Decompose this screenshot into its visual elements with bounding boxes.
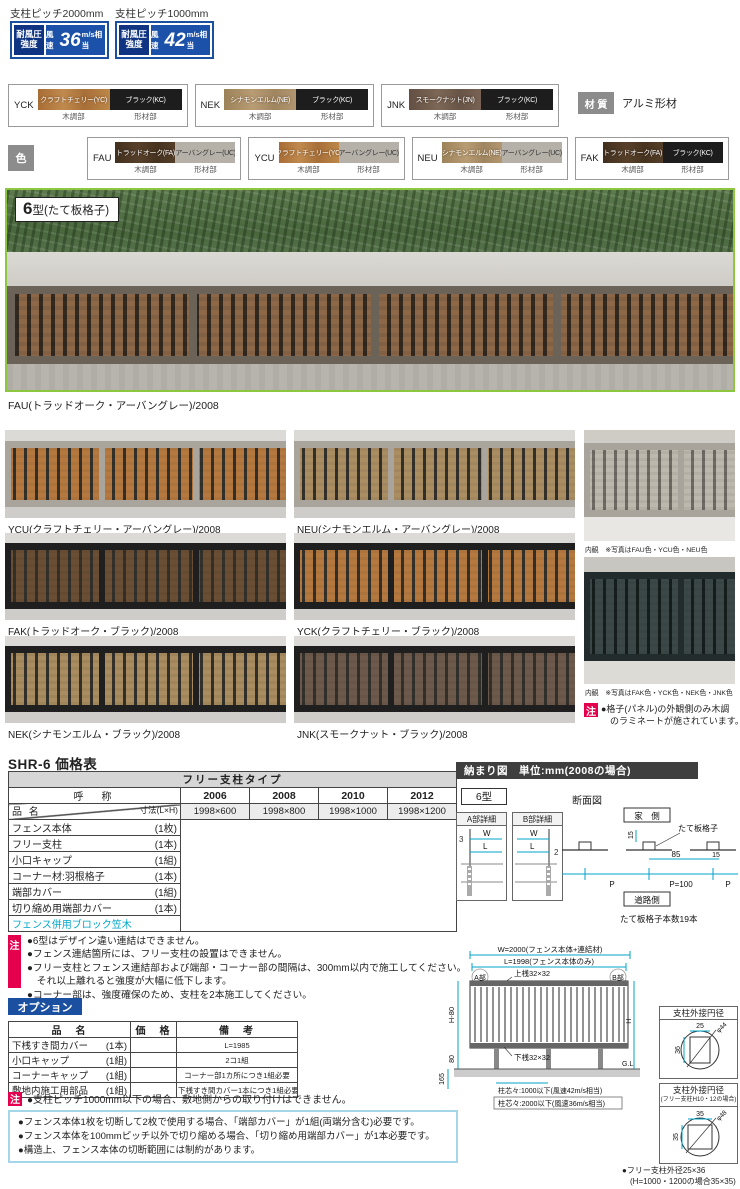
svg-text:15: 15 [712,852,720,859]
swatch-code: YCU [254,153,274,164]
interior-photo-dark [584,557,735,684]
opt-row-note: コーナー部1カ所につき1組必要 [177,1068,298,1083]
svg-text:たて板格子本数19本: たて板格子本数19本 [620,914,698,924]
pitch-label-1000: 支柱ピッチ1000mm [115,6,208,21]
svg-text:たて板格子: たて板格子 [678,823,718,833]
options-table: 品 名 価 格 備 考 下桟すき間カバー(1本) L=1985 小口キャップ(1… [8,1021,298,1098]
size-code: 2006 [181,788,250,804]
series-suffix: 型(たて板格子) [32,202,109,218]
opt-row-name: 下桟すき間カバー(1本) [9,1038,131,1053]
opt-row-name: 小口キャップ(1組) [9,1053,131,1068]
post-circle-title: 支柱外接円径 [660,1007,737,1020]
wind-badge-36: 耐風圧強度 風速 36 m/s相当 [10,21,109,59]
svg-text:P: P [725,880,730,889]
frame-color-chip: アーバングレー(UC) [175,142,235,163]
wind-badge-42: 耐風圧強度 風速 42 m/s相当 [115,21,214,59]
main-photo-fau: 6型(たて板格子) [5,188,735,392]
price-table: フリー支柱タイプ 呼 称 2006 2008 2010 2012 寸法(L×H)… [8,771,457,932]
price-type-header: フリー支柱タイプ [9,772,457,788]
svg-text:W: W [530,829,538,838]
interior-caption-1: 内観 ※写真はFAU色・YCU色・NEU色 [585,544,707,554]
size-code: 2012 [388,788,457,804]
post-circle-box-2: 支柱外接円径 (フリー支柱H10・12の場合) φ48 35 35 [659,1083,738,1164]
wind-strength-label: 耐風圧強度 [119,25,149,55]
post-outer-note: ●フリー支柱外径25×36 (H=1000・1200の場合35×35) [622,1166,736,1187]
size-code: 2008 [250,788,319,804]
note-line: ●フェンス連結箇所には、フリー支柱の設置はできません。 [27,948,466,961]
wind-value: 36 [60,31,81,50]
catalog-page: 支柱ピッチ2000mm 支柱ピッチ1000mm 耐風圧強度 風速 36 m/s相… [0,0,740,1189]
wind-prefix: 風速 [151,29,164,51]
detail-a-box: A部詳細 3 W L [456,812,507,901]
elevation-drawing: W=2000(フェンス本体+連結材) L=1998(フェンス本体のみ) A部 B… [436,943,640,1111]
color-swatch-yck: YCK クラフトチェリー(YC) ブラック(KC) 木調部 形材部 [8,84,188,127]
svg-text:上桟32×32: 上桟32×32 [514,968,550,978]
pitch-label-2000: 支柱ピッチ2000mm [10,6,103,21]
swatch-code: NEU [418,153,438,164]
svg-text:P: P [609,880,614,889]
wood-part-label: 木調部 [409,110,481,122]
size-dims: 1998×1200 [388,804,457,820]
wood-part-label: 木調部 [224,110,296,122]
svg-text:36: 36 [675,1046,682,1054]
wood-part-label: 木調部 [115,163,175,175]
swatch-code: NEK [201,100,221,111]
diagonal-header-cell: 寸法(L×H) 品 名 [9,804,181,820]
svg-text:L: L [530,842,535,851]
color-row-label: 色 [8,145,34,171]
item-header: 品 名 [12,803,41,818]
wood-color-chip: クラフトチェリー(YC) [38,89,110,110]
note-badge: 注 [584,703,598,717]
frame-part-label: 形材部 [339,163,399,175]
note-line: ●フリー支柱とフェンス連結部および端部・コーナー部の間隔は、300mm以内で施工… [27,962,466,975]
main-photo-caption: FAU(トラッドオーク・アーバングレー)/2008 [8,398,219,413]
frame-color-chip: アーバングレー(UC) [339,142,399,163]
interior-note-line1: ●格子(パネル)の外観側のみ木調 [601,703,740,715]
price-area-blank [181,820,457,932]
bottom-notes-box: ●フェンス本体1枚を切断して2枚で使用する場合、「端部カバー」が1組(両端分含む… [8,1110,458,1163]
options-note: 注 ●支柱ピッチ1000mm以下の場合、敷地側からの取り付けはできません。 [8,1091,352,1106]
svg-text:φ48: φ48 [715,1109,728,1122]
post-circle-drawing-1: φ44 25 36 [660,1020,737,1076]
note-line: それ以上離れると強度が大幅に低下します。 [27,975,466,988]
note-badge: 注 [8,1092,22,1106]
size-dims: 1998×600 [181,804,250,820]
fence-photo-nek [5,636,286,723]
svg-text:H-80: H-80 [447,1007,456,1023]
wood-color-chip: シナモンエルム(NE) [224,89,296,110]
frame-part-label: 形材部 [663,163,723,175]
wood-color-chip: トラッドオーク(FA) [603,142,663,163]
wind-unit: m/s相当 [187,29,210,51]
color-swatch-ycu: YCU クラフトチェリー(YC) アーバングレー(UC) 木調部 形材部 [248,137,404,180]
svg-text:G.L: G.L [622,1061,633,1068]
opt-row-price [131,1053,177,1068]
bottom-note-line: ●フェンス本体1枚を切断して2枚で使用する場合、「端部カバー」が1組(両端分含む… [18,1116,448,1130]
material-group: 材 質 アルミ形材 [578,92,677,114]
item-row: 端部カバー(1組) [9,884,181,900]
series-number: 6 [23,199,32,219]
notes-block: 注 ●6型はデザイン違い連結はできません。 ●フェンス連結箇所には、フリー支柱の… [8,935,466,1002]
svg-text:L: L [483,842,488,851]
color-swatch-fau: FAU トラッドオーク(FA) アーバングレー(UC) 木調部 形材部 [87,137,241,180]
post-circle-drawing-2: φ48 35 35 [660,1107,737,1163]
interior-photo-light [584,430,735,541]
item-row: コーナー材:羽根格子(1本) [9,868,181,884]
svg-text:柱芯々:2000以下(風速36m/s相当): 柱芯々:2000以下(風速36m/s相当) [498,1099,605,1108]
concrete-wall [7,252,733,290]
fence-photo-ycu [5,430,286,518]
frame-color-chip: ブラック(KC) [663,142,723,163]
opt-row-name: コーナーキャップ(1組) [9,1068,131,1083]
frame-color-chip: ブラック(KC) [296,89,368,110]
color-swatch-neu: NEU シナモンエルム(NE) アーバングレー(UC) 木調部 形材部 [412,137,568,180]
size-dims: 1998×800 [250,804,319,820]
svg-text:W=2000(フェンス本体+連結材): W=2000(フェンス本体+連結材) [498,944,603,954]
post-circle-title: 支柱外接円径 (フリー支柱H10・12の場合) [660,1084,737,1107]
opt-row-note: L=1985 [177,1038,298,1053]
layout-diagram-header: 納まり図 単位:mm(2008の場合) [456,762,698,779]
interior-note: 注 ●格子(パネル)の外観側のみ木調 のラミネートが施されています。 [584,703,738,727]
series-badge: 6型(たて板格子) [15,197,119,222]
fence-photo-yck [294,533,575,620]
name-header: 呼 称 [9,788,181,804]
interior-caption-2: 内観 ※写真はFAK色・YCK色・NEK色・JNK色 [585,687,733,697]
wood-color-chip: クラフトチェリー(YC) [279,142,339,163]
size-code: 2010 [319,788,388,804]
svg-text:80: 80 [449,1055,456,1063]
svg-text:15: 15 [628,831,635,839]
fence-photo-fak [5,533,286,620]
item-row: 切り縮め用端部カバー(1本) [9,900,181,916]
wind-strength-label: 耐風圧強度 [14,25,44,55]
svg-text:家 側: 家 側 [634,811,660,821]
svg-text:L=1998(フェンス本体のみ): L=1998(フェンス本体のみ) [504,956,595,966]
wind-value: 42 [165,31,186,50]
options-note-text: ●支柱ピッチ1000mm以下の場合、敷地側からの取り付けはできません。 [27,1091,352,1106]
svg-text:下桟32×32: 下桟32×32 [514,1052,550,1062]
wood-part-label: 木調部 [38,110,110,122]
opt-row-price [131,1038,177,1053]
detail-b-box: B部詳細 2 W L [512,812,563,901]
frame-color-chip: アーバングレー(UC) [502,142,562,163]
type-label-box: 6型 [461,788,507,805]
wood-part-label: 木調部 [603,163,663,175]
svg-text:柱芯々:1000以下(風速42m/s相当): 柱芯々:1000以下(風速42m/s相当) [498,1086,602,1095]
price-table-title: SHR-6 価格表 [8,753,97,773]
item-row: 小口キャップ(1組) [9,852,181,868]
svg-text:φ44: φ44 [715,1021,728,1034]
color-swatch-nek: NEK シナモンエルム(NE) ブラック(KC) 木調部 形材部 [195,84,375,127]
wind-unit: m/s相当 [82,29,105,51]
wood-color-chip: スモークナット(JN) [409,89,481,110]
opt-header-note: 備 考 [177,1022,298,1038]
section-view-label: 断面図 [572,792,602,807]
swatch-code: YCK [14,100,34,111]
detail-a-drawing: 3 W L [457,826,506,900]
note-line: ●コーナー部は、強度確保のため、支柱を2本施工してください。 [27,989,466,1002]
frame-part-label: 形材部 [502,163,562,175]
opt-row-note: 2コ1組 [177,1053,298,1068]
fence-photo-jnk [294,636,575,723]
color-swatch-fak: FAK トラッドオーク(FA) ブラック(KC) 木調部 形材部 [575,137,729,180]
swatch-row-2: 色 FAU トラッドオーク(FA) アーバングレー(UC) 木調部 形材部 YC… [8,137,729,180]
frame-part-label: 形材部 [175,163,235,175]
svg-text:35: 35 [673,1133,680,1141]
svg-text:3: 3 [459,835,464,844]
frame-part-label: 形材部 [110,110,182,122]
frame-color-chip: ブラック(KC) [481,89,553,110]
svg-text:25: 25 [696,1023,704,1030]
block-coping-link[interactable]: フェンス併用ブロック笠木 [9,916,181,932]
opt-row-price [131,1068,177,1083]
swatch-row-1: YCK クラフトチェリー(YC) ブラック(KC) 木調部 形材部 NEK シナ… [8,84,677,127]
fence-photo-neu [294,430,575,518]
note-line: ●6型はデザイン違い連結はできません。 [27,935,466,948]
frame-part-label: 形材部 [296,110,368,122]
swatch-code: JNK [387,100,405,111]
photo-caption: NEK(シナモンエルム・ブラック)/2008 [8,726,180,741]
svg-text:道路側: 道路側 [634,895,660,905]
wood-part-label: 木調部 [279,163,339,175]
color-swatch-jnk: JNK スモークナット(JN) ブラック(KC) 木調部 形材部 [381,84,559,127]
ground [7,364,733,390]
opt-header-name: 品 名 [9,1022,131,1038]
detail-b-drawing: 2 W L [513,826,562,900]
wood-color-chip: シナモンエルム(NE) [442,142,502,163]
svg-text:165: 165 [439,1073,446,1085]
svg-text:35: 35 [696,1111,704,1118]
wood-color-chip: トラッドオーク(FA) [115,142,175,163]
dimension-header: 寸法(L×H) [140,804,179,816]
photo-caption: JNK(スモークナット・ブラック)/2008 [297,726,468,741]
svg-text:W: W [483,829,491,838]
item-row: フェンス本体(1枚) [9,820,181,836]
fence-panel [7,286,733,364]
section-view-drawing: 家 側 たて板格子 15 85 15 P P=100 P 道路側 たて板格子本数… [560,806,740,930]
svg-text:2: 2 [554,848,559,857]
frame-part-label: 形材部 [481,110,553,122]
item-row: フリー支柱(1本) [9,836,181,852]
bottom-note-line: ●フェンス本体を100mmピッチ以外で切り縮める場合、「切り縮め用端部カバー」が… [18,1130,448,1144]
svg-text:P=100: P=100 [669,880,693,889]
size-dims: 1998×1000 [319,804,388,820]
svg-text:H: H [624,1018,633,1023]
material-label: 材 質 [578,92,614,114]
bottom-note-line: ●構造上、フェンス本体の切断範囲には制約があります。 [18,1144,448,1158]
detail-b-title: B部詳細 [513,813,562,826]
svg-text:85: 85 [672,850,681,859]
frame-color-chip: ブラック(KC) [110,89,182,110]
swatch-code: FAK [581,153,599,164]
wood-part-label: 木調部 [442,163,502,175]
opt-header-price: 価 格 [131,1022,177,1038]
detail-a-title: A部詳細 [457,813,506,826]
options-badge: オプション [8,998,82,1015]
post-circle-box-1: 支柱外接円径 φ44 25 36 [659,1006,738,1079]
wind-prefix: 風速 [46,29,59,51]
note-badge: 注 [8,935,21,988]
material-value: アルミ形材 [622,95,677,111]
swatch-code: FAU [93,153,111,164]
interior-note-line2: のラミネートが施されています。 [601,715,740,727]
